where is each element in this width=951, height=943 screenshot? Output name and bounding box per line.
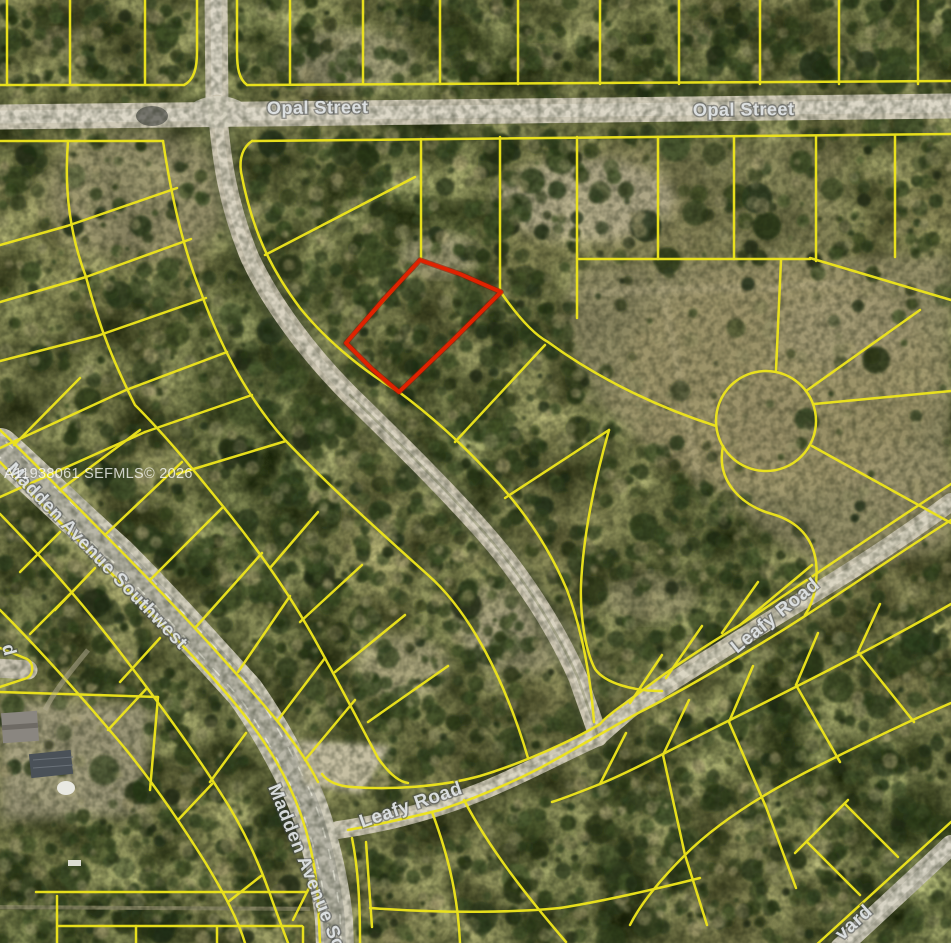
svg-text:Opal Street: Opal Street bbox=[267, 97, 369, 118]
svg-text:Opal Street: Opal Street bbox=[693, 99, 795, 120]
svg-text:A11938061 SEFMLS© 2026: A11938061 SEFMLS© 2026 bbox=[4, 466, 193, 482]
